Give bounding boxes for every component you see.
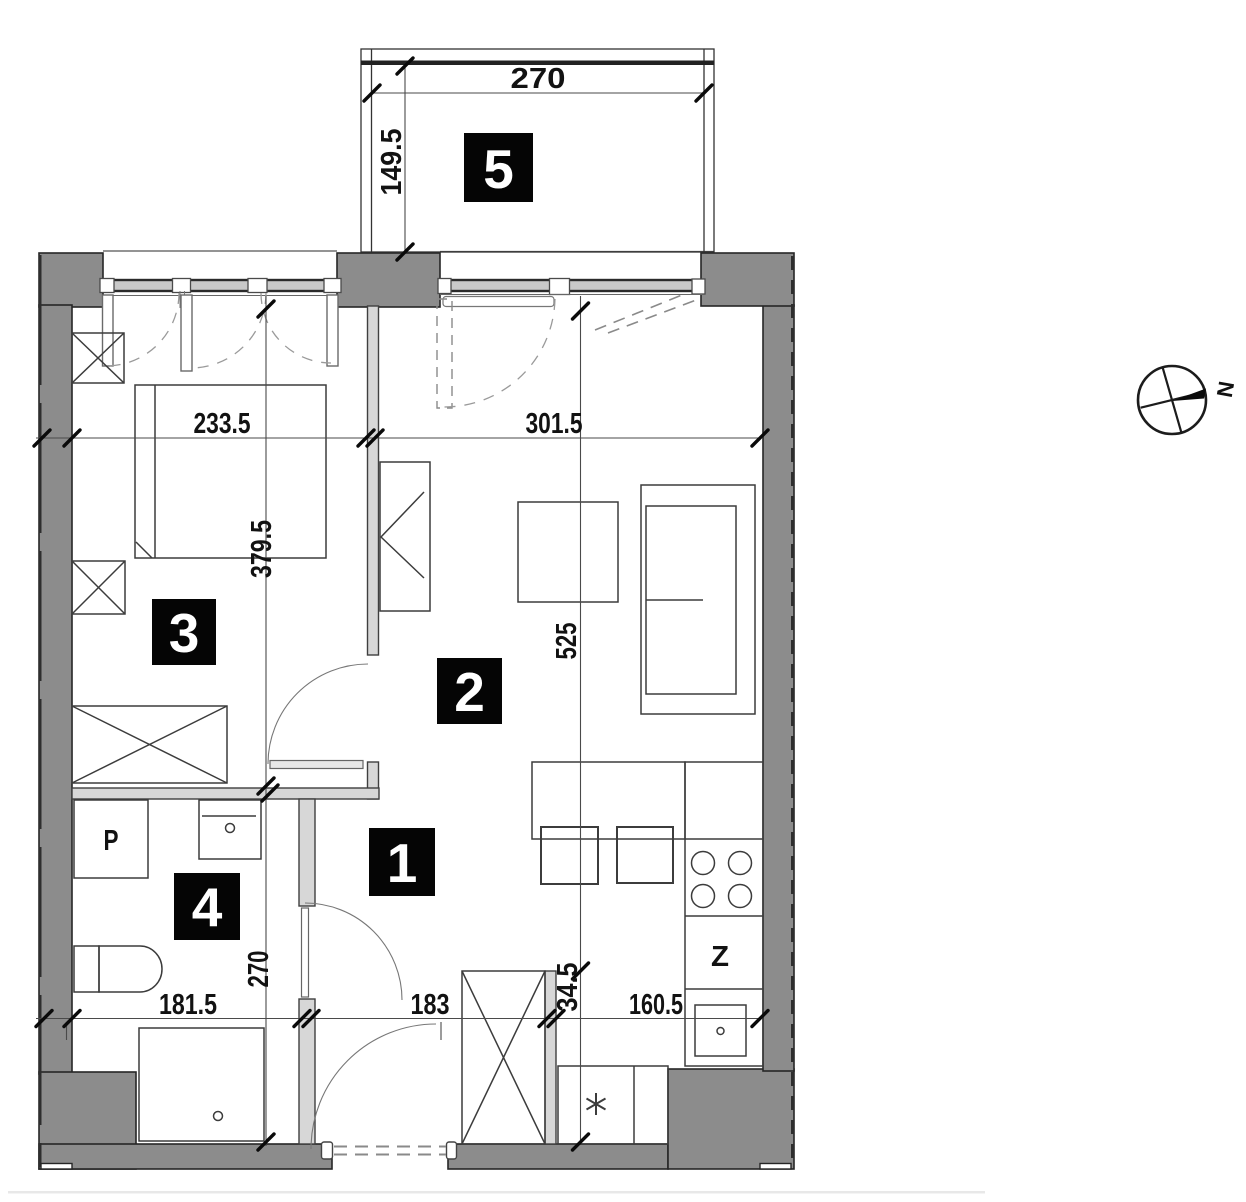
svg-text:4: 4 bbox=[192, 876, 223, 938]
svg-text:160.5: 160.5 bbox=[629, 989, 683, 1021]
svg-text:270: 270 bbox=[243, 951, 275, 988]
svg-text:P: P bbox=[104, 825, 119, 857]
svg-text:1: 1 bbox=[387, 832, 418, 894]
svg-text:3: 3 bbox=[169, 602, 200, 664]
svg-text:270: 270 bbox=[511, 63, 566, 95]
svg-text:233.5: 233.5 bbox=[194, 408, 251, 440]
svg-text:2: 2 bbox=[454, 661, 485, 723]
svg-text:379.5: 379.5 bbox=[246, 520, 278, 578]
svg-text:149.5: 149.5 bbox=[376, 129, 408, 196]
svg-text:181.5: 181.5 bbox=[159, 989, 217, 1021]
svg-text:183: 183 bbox=[411, 989, 450, 1021]
svg-text:5: 5 bbox=[483, 138, 514, 200]
svg-text:34.5: 34.5 bbox=[552, 963, 584, 1012]
svg-text:525: 525 bbox=[551, 623, 583, 660]
svg-text:Z: Z bbox=[711, 941, 729, 973]
svg-text:301.5: 301.5 bbox=[526, 408, 583, 440]
